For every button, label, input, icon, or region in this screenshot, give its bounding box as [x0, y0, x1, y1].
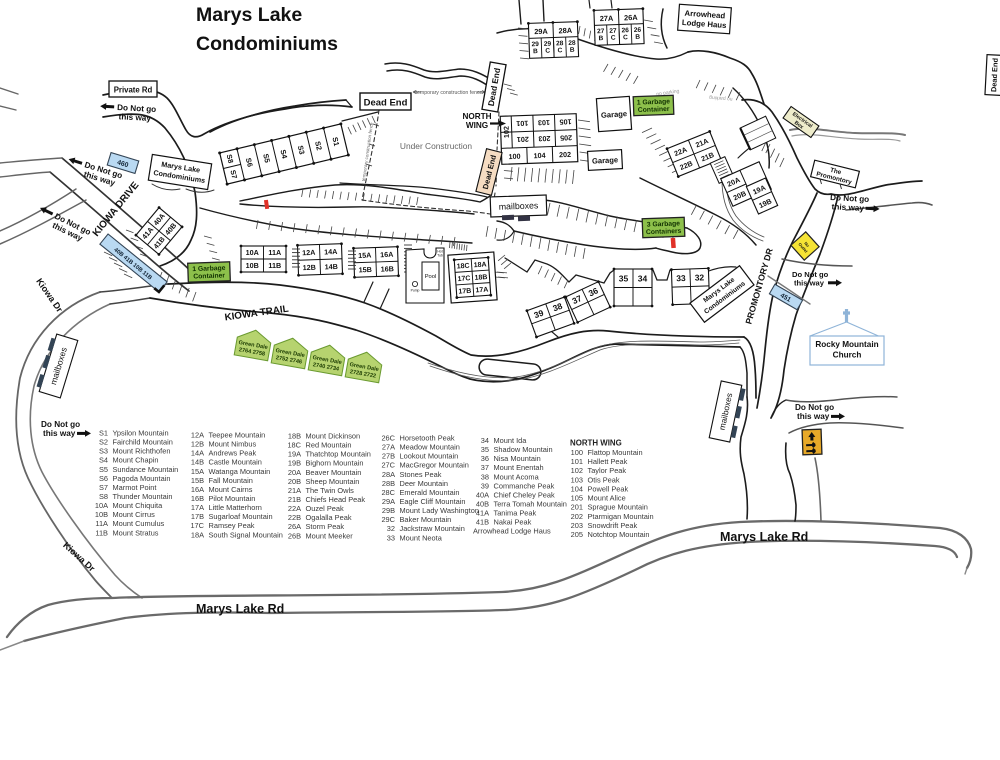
svg-text:14A: 14A [191, 449, 204, 458]
svg-text:105: 105 [571, 494, 583, 503]
svg-text:C: C [545, 48, 550, 55]
svg-text:Ypsilon Mountain: Ypsilon Mountain [113, 429, 169, 438]
svg-text:Mount Dickinson: Mount Dickinson [306, 432, 361, 441]
svg-text:Meadow Mountain: Meadow Mountain [400, 443, 460, 452]
svg-text:15B: 15B [191, 476, 204, 485]
svg-text:33: 33 [387, 533, 395, 542]
svg-text:Church: Church [833, 351, 862, 360]
svg-text:28A: 28A [558, 26, 573, 35]
svg-text:C: C [557, 47, 562, 54]
svg-text:18B: 18B [288, 432, 301, 441]
svg-text:26A: 26A [288, 522, 301, 531]
svg-text:Mount Chapin: Mount Chapin [113, 456, 159, 465]
svg-text:South Signal Mountain: South Signal Mountain [209, 530, 283, 539]
svg-text:B: B [570, 47, 575, 54]
svg-text:16B: 16B [191, 494, 204, 503]
svg-text:Mount Stratus: Mount Stratus [113, 528, 159, 537]
svg-text:11A: 11A [268, 248, 281, 257]
svg-text:S2: S2 [99, 438, 108, 447]
svg-text:C: C [623, 34, 628, 41]
svg-text:S5: S5 [99, 465, 108, 474]
svg-text:Deer Mountain: Deer Mountain [400, 479, 448, 488]
svg-text:36: 36 [481, 454, 489, 463]
svg-text:40B: 40B [476, 499, 489, 508]
svg-text:203: 203 [538, 134, 550, 143]
svg-text:202: 202 [571, 512, 583, 521]
svg-text:Teepee Mountain: Teepee Mountain [209, 431, 266, 440]
svg-text:11B: 11B [95, 528, 108, 537]
svg-text:28C: 28C [381, 488, 395, 497]
svg-text:26A: 26A [624, 13, 639, 22]
svg-text:40A: 40A [476, 490, 489, 499]
svg-text:Thunder Mountain: Thunder Mountain [113, 492, 173, 501]
svg-text:10A: 10A [95, 501, 108, 510]
svg-text:Mount Nimbus: Mount Nimbus [209, 440, 257, 449]
svg-text:Andrews Peak: Andrews Peak [209, 449, 257, 458]
svg-text:NORTH WING: NORTH WING [570, 439, 622, 448]
svg-text:Sundance Mountain: Sundance Mountain [113, 465, 179, 474]
svg-text:Pilot Mountain: Pilot Mountain [209, 494, 256, 503]
svg-text:Stones Peak: Stones Peak [400, 470, 442, 479]
svg-text:41A: 41A [476, 509, 489, 518]
svg-text:Tub: Tub [437, 254, 443, 258]
svg-text:Fall Mountain: Fall Mountain [209, 476, 253, 485]
svg-text:15B: 15B [359, 265, 372, 274]
svg-text:27B: 27B [382, 452, 395, 461]
svg-text:Mount Lady Washington: Mount Lady Washington [400, 506, 479, 515]
svg-text:201: 201 [517, 135, 529, 144]
svg-text:Mount Neota: Mount Neota [400, 533, 443, 542]
svg-text:16A: 16A [191, 485, 204, 494]
svg-text:Dead End: Dead End [364, 98, 408, 109]
svg-text:S6: S6 [99, 474, 108, 483]
svg-text:14B: 14B [325, 262, 338, 271]
svg-text:Jackstraw Mountain: Jackstraw Mountain [400, 524, 465, 533]
svg-text:Sugarloaf Mountain: Sugarloaf Mountain [209, 512, 273, 521]
svg-text:B: B [635, 34, 640, 41]
svg-text:27C: 27C [381, 461, 395, 470]
svg-text:S3: S3 [99, 447, 108, 456]
svg-text:this way: this way [797, 412, 830, 421]
svg-text:12A: 12A [191, 431, 204, 440]
svg-text:33: 33 [676, 273, 686, 283]
svg-text:104: 104 [571, 484, 583, 493]
svg-text:203: 203 [571, 521, 583, 530]
svg-text:21A: 21A [288, 486, 301, 495]
svg-text:34: 34 [638, 273, 648, 283]
svg-text:38: 38 [481, 472, 489, 481]
svg-text:B: B [533, 48, 538, 55]
svg-text:Little Matterhorn: Little Matterhorn [209, 503, 262, 512]
svg-text:Mount Cirrus: Mount Cirrus [113, 510, 156, 519]
svg-text:17C: 17C [190, 521, 204, 530]
svg-text:mailboxes: mailboxes [499, 200, 540, 211]
svg-text:17A: 17A [475, 287, 488, 295]
svg-text:Castle Mountain: Castle Mountain [209, 458, 262, 467]
svg-text:B: B [598, 35, 603, 42]
svg-text:Snowdrift Peak: Snowdrift Peak [588, 521, 638, 530]
svg-text:103: 103 [571, 475, 583, 484]
svg-text:201: 201 [571, 503, 583, 512]
svg-text:39: 39 [481, 481, 489, 490]
svg-text:this way: this way [118, 112, 151, 123]
svg-text:Private Rd: Private Rd [114, 86, 153, 95]
svg-text:Containers: Containers [646, 228, 682, 236]
svg-text:19B: 19B [288, 459, 301, 468]
svg-text:14A: 14A [324, 247, 337, 256]
svg-text:Mount Cairns: Mount Cairns [209, 485, 253, 494]
svg-text:21B: 21B [288, 495, 301, 504]
svg-text:202: 202 [559, 150, 571, 159]
svg-text:Mount Meeker: Mount Meeker [306, 531, 354, 540]
svg-text:102: 102 [571, 466, 583, 475]
svg-text:Ramsey Peak: Ramsey Peak [209, 521, 255, 530]
svg-text:Emerald Mountain: Emerald Mountain [400, 488, 460, 497]
svg-text:Mount Chiquita: Mount Chiquita [113, 501, 164, 510]
svg-text:Bighorn Mountain: Bighorn Mountain [306, 459, 364, 468]
svg-text:Beaver Mountain: Beaver Mountain [306, 468, 362, 477]
svg-text:C: C [611, 35, 616, 42]
svg-text:Ouzel Peak: Ouzel Peak [306, 504, 345, 513]
svg-text:Baker Mountain: Baker Mountain [400, 515, 452, 524]
svg-text:Watanga Mountain: Watanga Mountain [209, 467, 271, 476]
svg-text:Garage: Garage [592, 155, 619, 165]
svg-text:22B: 22B [288, 513, 301, 522]
svg-text:26B: 26B [288, 531, 301, 540]
svg-text:Ptarmigan Mountain: Ptarmigan Mountain [588, 512, 654, 521]
svg-text:Terra Tomah Mountain: Terra Tomah Mountain [494, 499, 567, 508]
svg-text:Under Construction: Under Construction [400, 141, 472, 151]
svg-text:27A: 27A [600, 14, 615, 23]
svg-text:this way: this way [831, 202, 864, 213]
svg-text:WING: WING [466, 121, 488, 130]
svg-text:Mount Cumulus: Mount Cumulus [113, 519, 165, 528]
svg-text:28B: 28B [382, 479, 395, 488]
svg-text:Rocky Mountain: Rocky Mountain [815, 340, 878, 349]
svg-text:105: 105 [559, 117, 571, 126]
svg-text:18A: 18A [191, 530, 204, 539]
svg-text:S7: S7 [99, 483, 108, 492]
svg-text:Sprague Mountain: Sprague Mountain [588, 503, 648, 512]
svg-text:205: 205 [571, 530, 583, 539]
svg-text:S4: S4 [99, 456, 108, 465]
svg-text:Garage: Garage [601, 109, 628, 120]
svg-text:Nisa Mountain: Nisa Mountain [494, 454, 541, 463]
svg-text:Powell Peak: Powell Peak [588, 484, 629, 493]
svg-text:Hallett Peak: Hallett Peak [588, 457, 628, 466]
svg-text:Mount Ida: Mount Ida [494, 436, 528, 445]
svg-text:101: 101 [516, 119, 528, 128]
svg-text:12A: 12A [302, 248, 315, 257]
svg-text:Pool: Pool [425, 274, 437, 280]
svg-text:Container: Container [638, 106, 670, 114]
svg-text:Marys Lake Rd: Marys Lake Rd [720, 530, 808, 544]
svg-text:Shadow Mountain: Shadow Mountain [494, 445, 553, 454]
svg-text:Red Mountain: Red Mountain [306, 441, 352, 450]
svg-text:15A: 15A [191, 467, 204, 476]
svg-text:100: 100 [508, 152, 520, 161]
svg-text:35: 35 [619, 273, 629, 283]
svg-text:18C: 18C [287, 441, 301, 450]
svg-text:Commanche Peak: Commanche Peak [494, 481, 555, 490]
svg-text:this way: this way [794, 279, 825, 288]
svg-text:Flattop Mountain: Flattop Mountain [588, 448, 643, 457]
svg-text:Marys Lake: Marys Lake [196, 4, 302, 26]
svg-text:Container: Container [193, 272, 225, 280]
svg-text:32: 32 [695, 272, 705, 282]
svg-text:Mount Enentah: Mount Enentah [494, 463, 544, 472]
svg-text:Arrowhead Lodge Haus: Arrowhead Lodge Haus [473, 527, 551, 536]
svg-text:temporary construction fence: temporary construction fence [416, 90, 483, 96]
svg-text:16A: 16A [380, 250, 393, 259]
svg-text:Pump: Pump [411, 289, 420, 293]
svg-text:Mount Richthofen: Mount Richthofen [113, 447, 171, 456]
svg-text:Notchtop Mountain: Notchtop Mountain [588, 530, 650, 539]
svg-text:Nakai Peak: Nakai Peak [494, 518, 532, 527]
svg-text:MacGregor Mountain: MacGregor Mountain [400, 461, 469, 470]
svg-text:32: 32 [387, 524, 395, 533]
svg-text:Tanima Peak: Tanima Peak [494, 509, 537, 518]
svg-text:Mount Alice: Mount Alice [588, 494, 626, 503]
svg-text:10A: 10A [246, 248, 259, 257]
svg-text:14B: 14B [191, 458, 204, 467]
svg-text:12B: 12B [191, 440, 204, 449]
svg-text:10B: 10B [246, 261, 259, 270]
svg-text:Ogalalla Peak: Ogalalla Peak [306, 513, 352, 522]
svg-text:this way: this way [43, 429, 76, 438]
svg-text:Do Not go: Do Not go [795, 403, 834, 412]
svg-text:27A: 27A [382, 443, 395, 452]
svg-text:Taylor Peak: Taylor Peak [588, 466, 627, 475]
svg-text:Otis Peak: Otis Peak [588, 475, 620, 484]
svg-text:17C: 17C [457, 275, 470, 283]
svg-text:Pagoda Mountain: Pagoda Mountain [113, 474, 171, 483]
svg-text:17B: 17B [191, 512, 204, 521]
svg-text:18A: 18A [474, 261, 487, 269]
svg-text:28A: 28A [382, 470, 395, 479]
svg-text:205: 205 [560, 133, 572, 142]
svg-text:103: 103 [538, 118, 550, 127]
svg-text:26C: 26C [381, 434, 395, 443]
svg-text:15A: 15A [358, 251, 371, 260]
svg-text:41B: 41B [476, 518, 489, 527]
svg-text:37: 37 [481, 463, 489, 472]
svg-text:Condominiums: Condominiums [196, 33, 338, 55]
svg-text:Marmot Point: Marmot Point [113, 483, 157, 492]
svg-text:20A: 20A [288, 468, 301, 477]
svg-text:18C: 18C [457, 263, 470, 271]
svg-text:Marys Lake Rd: Marys Lake Rd [196, 602, 284, 616]
svg-text:10B: 10B [95, 510, 108, 519]
svg-text:Lookout Mountain: Lookout Mountain [400, 452, 459, 461]
svg-text:20B: 20B [288, 477, 301, 486]
svg-text:Mount Acoma: Mount Acoma [494, 472, 540, 481]
svg-text:Storm Peak: Storm Peak [306, 522, 345, 531]
svg-text:19A: 19A [288, 450, 301, 459]
svg-text:Eagle Cliff Mountain: Eagle Cliff Mountain [400, 497, 466, 506]
svg-text:100: 100 [571, 448, 583, 457]
svg-text:17B: 17B [458, 288, 471, 296]
svg-text:Fairchild Mountain: Fairchild Mountain [113, 438, 173, 447]
svg-text:Sheep Mountain: Sheep Mountain [306, 477, 360, 486]
svg-text:17A: 17A [191, 503, 204, 512]
svg-text:The Twin Owls: The Twin Owls [306, 486, 355, 495]
svg-text:16B: 16B [381, 264, 394, 273]
svg-text:29A: 29A [534, 27, 549, 36]
svg-text:11A: 11A [95, 519, 108, 528]
svg-text:Dead End: Dead End [989, 57, 1000, 92]
svg-text:NORTH: NORTH [462, 112, 491, 121]
svg-text:34: 34 [481, 436, 489, 445]
svg-text:Thatchtop Mountain: Thatchtop Mountain [306, 450, 371, 459]
svg-text:29A: 29A [382, 497, 395, 506]
svg-text:102: 102 [502, 126, 511, 138]
svg-text:22A: 22A [288, 504, 301, 513]
svg-text:18B: 18B [474, 274, 487, 282]
svg-text:104: 104 [533, 151, 545, 160]
svg-text:101: 101 [571, 457, 583, 466]
svg-text:S1: S1 [99, 429, 108, 438]
svg-text:Chiefs Head Peak: Chiefs Head Peak [306, 495, 366, 504]
svg-text:29C: 29C [381, 515, 395, 524]
svg-text:Chief Cheley Peak: Chief Cheley Peak [494, 490, 556, 499]
svg-text:12B: 12B [303, 263, 316, 272]
svg-text:Horsetooth Peak: Horsetooth Peak [400, 434, 455, 443]
svg-text:29B: 29B [382, 506, 395, 515]
svg-text:S8: S8 [99, 492, 108, 501]
svg-text:Do Not go: Do Not go [41, 420, 80, 429]
svg-text:11B: 11B [268, 261, 281, 270]
svg-text:35: 35 [481, 445, 489, 454]
